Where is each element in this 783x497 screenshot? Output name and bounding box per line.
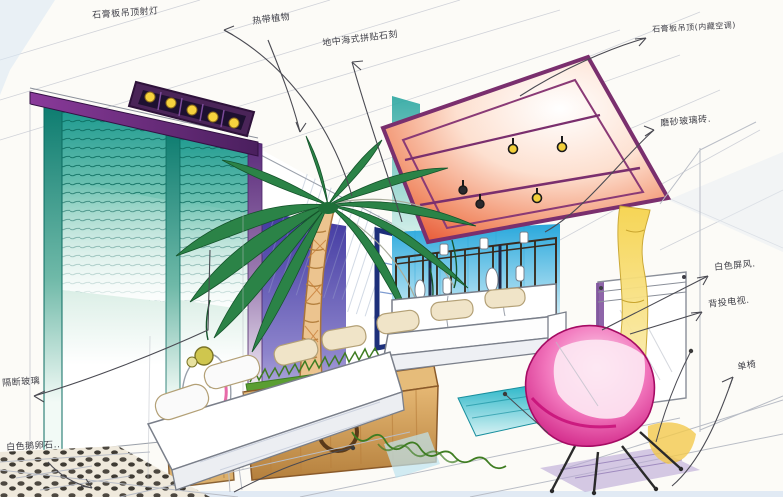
annotation-text: 隔断玻璃 <box>2 376 41 389</box>
sketch-canvas: 石膏板吊顶射灯 热带植物 地中海式拼贴石刻 石膏板吊顶(内藏空调) 磨砂玻璃砖.… <box>0 0 783 497</box>
annotation-text: 白色鹅卵石.. <box>6 440 61 453</box>
interior-sketch-drawing <box>0 0 783 497</box>
annotation-text: 单椅 <box>737 360 757 373</box>
